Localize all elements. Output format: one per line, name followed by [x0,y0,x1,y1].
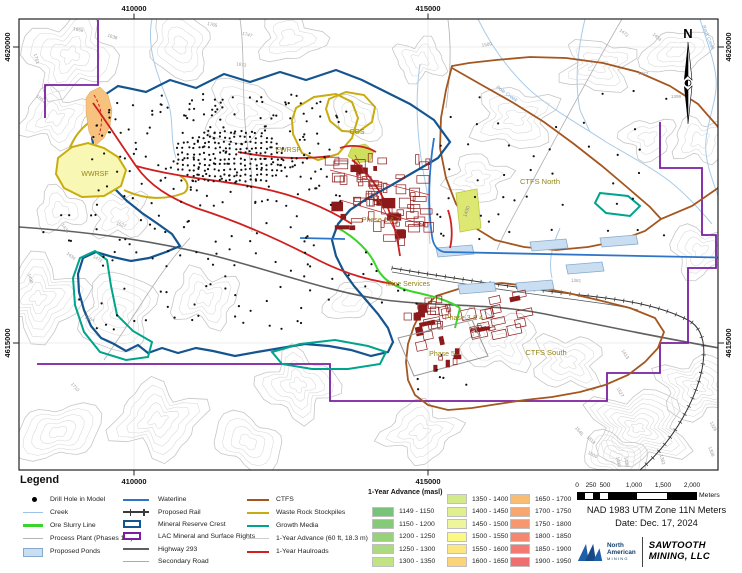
projection-note: NAD 1983 UTM Zone 11N Meters [573,505,740,515]
advance-color-swatch [447,544,467,554]
scale-bar-tick-label: 1,000 [626,482,642,489]
advance-color-swatch [510,532,530,542]
advance-range-label: 1750 - 1800 [535,521,571,528]
svg-text:N: N [683,26,692,41]
advance-range-label: 1300 - 1350 [399,558,435,565]
advance-color-swatch [447,507,467,517]
svg-text:4615000: 4615000 [3,328,12,357]
advance-color-swatch [372,557,394,567]
advance-range-label: 1550 - 1600 [472,546,508,553]
advance-color-swatch [372,544,394,554]
date-note: Date: Dec. 17, 2024 [573,518,740,528]
legend-item: Highway 293 [122,544,197,555]
legend-item-label: 1-Year Advance (60 ft, 18.3 m) [276,535,368,542]
scale-bar-tick-label: 1,500 [655,482,671,489]
scale-bar-segment [637,493,667,499]
advance-legend-item: 1550 - 1600 [447,544,508,555]
scale-bar-segment [608,493,638,499]
na-logo-line2: American [607,550,636,556]
advance-color-swatch [372,507,394,517]
legend-item-label: Waterline [158,496,186,503]
map-notes: NAD 1983 UTM Zone 11N Meters Date: Dec. … [573,505,740,528]
legend-item-label: Highway 293 [158,546,197,553]
advance-legend-item: 1750 - 1800 [510,519,571,530]
legend-item-label: Mineral Reserve Crest [158,521,226,528]
legend-title: Legend [20,474,59,486]
advance-legend-item: 1150 - 1200 [372,519,435,530]
advance-color-swatch [510,557,530,567]
legend-item: Creek [22,507,68,518]
svg-text:415000: 415000 [415,4,440,13]
legend-item: Process Plant (Phases 1-5) [22,533,133,544]
advance-legend-item: 1450 - 1500 [447,519,508,530]
advance-legend-header: 1-Year Advance (masl) [368,489,442,496]
legend-item-label: 1-Year Haulroads [276,548,329,555]
line-symbol [22,533,46,544]
advance-legend-item: 1500 - 1550 [447,531,508,542]
advance-legend-item: 1250 - 1300 [372,544,435,555]
svg-text:CTFS South: CTFS South [525,348,566,357]
legend-item-label: Waste Rock Stockpiles [276,509,345,516]
advance-range-label: 1800 - 1850 [535,533,571,540]
advance-color-swatch [510,544,530,554]
advance-range-label: 1400 - 1450 [472,508,508,515]
advance-range-label: 1700 - 1750 [535,508,571,515]
legend-item-label: Drill Hole in Model [50,496,105,503]
advance-range-label: 1500 - 1550 [472,533,508,540]
advance-range-label: 1900 - 1950 [535,558,571,565]
line-symbol [246,507,272,518]
advance-legend-item: 1850 - 1900 [510,544,571,555]
advance-range-label: 1850 - 1900 [535,546,571,553]
svg-text:WWRSF: WWRSF [81,171,108,178]
svg-text:4620000: 4620000 [3,32,12,61]
logo-block: North American MINING SAWTOOTH MINING, L… [577,534,740,570]
svg-text:Mine Services: Mine Services [386,281,430,288]
legend-item: Proposed Ponds [22,546,100,557]
scale-bar-graphic [577,492,697,500]
legend-item-label: Growth Media [276,522,318,529]
advance-legend-item: 1700 - 1750 [510,506,571,517]
scale-bar-unit: Meters [699,492,720,499]
legend-item: Growth Media [246,520,318,531]
svg-text:CGS: CGS [349,129,365,136]
map-canvas: WWRSFEWRSFCGSCTFS NorthCTFS SouthPhase 1… [0,0,742,488]
legend-item: Ore Slurry Line [22,520,96,531]
mine-site-map-page: WWRSFEWRSFCGSCTFS NorthCTFS SouthPhase 1… [0,0,742,573]
legend-item: CTFS [246,494,294,505]
advance-color-swatch [372,532,394,542]
scale-bar-segment [600,493,607,499]
advance-color-swatch [447,494,467,504]
line-symbol [22,520,46,531]
scale-bar-tick-label: 0 [575,482,579,489]
advance-legend-item: 1900 - 1950 [510,556,571,567]
sawtooth-line2: MINING, LLC [649,552,710,563]
advance-range-label: 1149 - 1150 [399,508,434,515]
legend-item-label: CTFS [276,496,294,503]
line-symbol [122,556,152,567]
svg-text:Phase 5: Phase 5 [429,351,455,358]
svg-text:Phase 1 & 2: Phase 1 & 2 [362,217,400,224]
advance-range-label: 1250 - 1300 [399,546,435,553]
legend-item: 1-Year Advance (60 ft, 18.3 m) [246,533,368,544]
legend-item: LAC Mineral and Surface Rights [122,531,255,542]
line-symbol [246,546,272,557]
advance-color-swatch [510,507,530,517]
legend-item-label: Proposed Rail [158,509,201,516]
boundary-symbol [122,531,152,542]
advance-range-label: 1450 - 1500 [472,521,508,528]
boundary-symbol [122,519,152,530]
legend-item: 1-Year Haulroads [246,546,329,557]
legend-item: Proposed Rail [122,506,201,517]
legend-item-label: Ore Slurry Line [50,522,96,529]
svg-text:410000: 410000 [121,4,146,13]
scale-bar: 02505001,0001,5002,000 Meters [575,482,742,504]
svg-text:EWRSF: EWRSF [275,147,300,154]
legend-panel: Legend Drill Hole in ModelCreekOre Slurr… [0,470,575,573]
advance-legend-item: 1300 - 1350 [372,556,435,567]
advance-legend-item: 1200 - 1250 [372,531,435,542]
line-symbol [22,507,46,518]
scale-bar-segment [593,493,600,499]
north-american-mining-logo-text: North American MINING [607,543,636,561]
line-symbol [122,494,152,505]
advance-legend-item: 1350 - 1400 [447,494,508,505]
north-american-mining-logo-icon [577,540,604,564]
sawtooth-mining-logo-text: SAWTOOTH MINING, LLC [649,541,710,563]
scale-bar-tick-label: 250 [586,482,597,489]
scale-bar-segment [667,493,697,499]
legend-item: Drill Hole in Model [22,494,105,505]
svg-text:4620000: 4620000 [724,32,733,61]
advance-range-label: 1150 - 1200 [399,521,435,528]
legend-item: Waterline [122,494,186,505]
legend-item-label: Creek [50,509,68,516]
line-symbol [246,520,272,531]
legend-item-label: Secondary Road [158,558,209,565]
legend-item-label: Proposed Ponds [50,548,100,555]
advance-legend-item: 1600 - 1650 [447,556,508,567]
scale-bar-segment [585,493,592,499]
legend-item: Waste Rock Stockpiles [246,507,345,518]
advance-color-swatch [447,519,467,529]
advance-color-swatch [372,519,394,529]
advance-legend-item: 1149 - 1150 [372,506,434,517]
legend-item: Mineral Reserve Crest [122,519,226,530]
legend-item-label: LAC Mineral and Surface Rights [158,533,255,540]
svg-text:1399: 1399 [671,94,682,99]
advance-color-swatch [510,494,530,504]
scale-bar-tick-label: 2,000 [684,482,700,489]
advance-range-label: 1350 - 1400 [472,496,508,503]
svg-text:Phase 3 & 4: Phase 3 & 4 [445,315,483,322]
advance-range-label: 1600 - 1650 [472,558,508,565]
advance-color-swatch [447,532,467,542]
na-logo-subtitle: MINING [607,557,636,561]
svg-text:1381: 1381 [571,278,582,284]
advance-range-label: 1200 - 1250 [399,533,435,540]
advance-range-label: 1650 - 1700 [535,496,571,503]
svg-text:CTFS North: CTFS North [520,177,560,186]
line-symbol [122,544,152,555]
logo-divider [642,537,643,567]
legend-item: Secondary Road [122,556,209,567]
advance-legend-item: 1650 - 1700 [510,494,571,505]
legend-item-label: Process Plant (Phases 1-5) [50,535,133,542]
line-symbol [246,494,272,505]
pond-symbol [22,546,46,557]
scale-bar-segment [578,493,585,499]
svg-text:1472: 1472 [638,71,649,77]
advance-legend-item: 1800 - 1850 [510,531,571,542]
line-symbol [246,533,272,544]
advance-color-swatch [447,557,467,567]
advance-legend-item: 1400 - 1450 [447,506,508,517]
svg-text:4615000: 4615000 [724,328,733,357]
drill-hole-symbol [22,494,46,505]
advance-color-swatch [510,519,530,529]
scale-bar-tick-label: 500 [600,482,611,489]
rail-symbol [122,507,152,518]
